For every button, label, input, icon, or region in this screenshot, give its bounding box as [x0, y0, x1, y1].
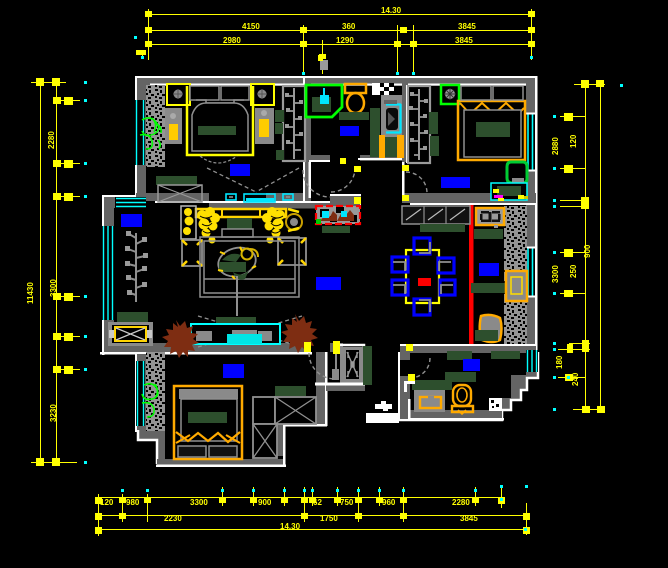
svg-text:3300: 3300 [551, 265, 560, 283]
svg-text:3845: 3845 [455, 36, 473, 45]
svg-text:3300: 3300 [49, 279, 58, 297]
svg-text:750: 750 [340, 498, 354, 507]
svg-text:900: 900 [583, 244, 592, 258]
svg-text:960: 960 [382, 498, 396, 507]
svg-text:2280: 2280 [47, 131, 56, 149]
svg-text:180: 180 [555, 355, 564, 369]
svg-text:3845: 3845 [460, 514, 478, 523]
svg-text:240: 240 [571, 372, 580, 386]
svg-text:120: 120 [100, 498, 114, 507]
svg-text:62: 62 [313, 498, 322, 507]
svg-text:14.30: 14.30 [280, 522, 301, 531]
svg-text:2880: 2880 [551, 137, 560, 155]
svg-text:3845: 3845 [458, 22, 476, 31]
svg-text:2280: 2280 [452, 498, 470, 507]
svg-text:980: 980 [126, 498, 140, 507]
svg-text:2230: 2230 [164, 514, 182, 523]
svg-text:3300: 3300 [190, 498, 208, 507]
svg-text:120: 120 [569, 134, 578, 148]
svg-text:14.30: 14.30 [381, 6, 402, 15]
svg-text:1750: 1750 [320, 514, 338, 523]
svg-text:1290: 1290 [336, 36, 354, 45]
svg-text:4150: 4150 [242, 22, 260, 31]
svg-text:3230: 3230 [49, 404, 58, 422]
svg-text:2980: 2980 [223, 36, 241, 45]
svg-text:360: 360 [342, 22, 356, 31]
svg-text:250: 250 [569, 264, 578, 278]
svg-text:900: 900 [258, 498, 272, 507]
svg-text:11430: 11430 [26, 282, 35, 304]
